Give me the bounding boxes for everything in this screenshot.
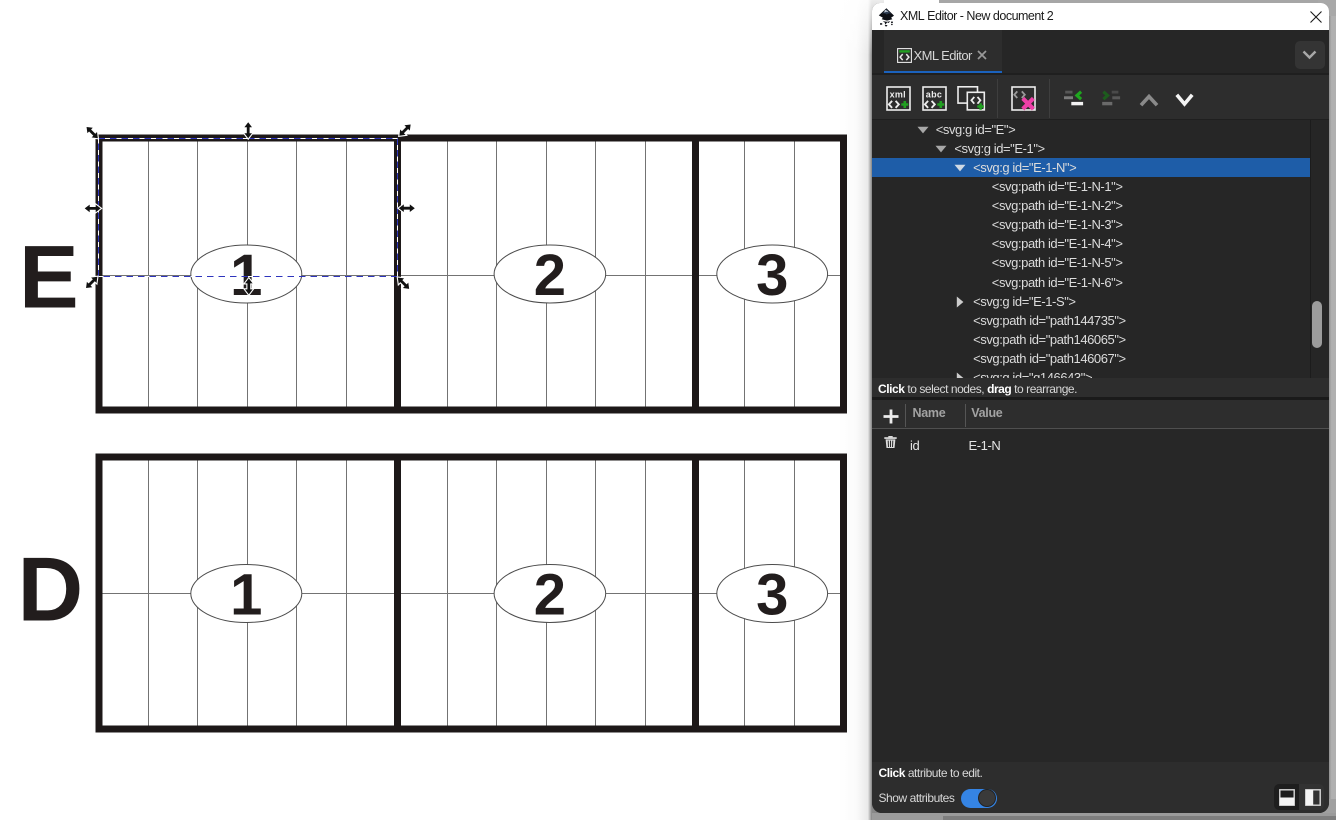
svg-text:2: 2 [534, 243, 566, 308]
svg-text:1: 1 [230, 562, 262, 627]
svg-text:xml: xml [889, 89, 905, 99]
svg-text:1: 1 [230, 243, 262, 308]
svg-text:E: E [19, 227, 79, 327]
svg-text:D: D [18, 540, 84, 641]
svg-text:3: 3 [756, 243, 788, 308]
svg-text:abc: abc [925, 89, 941, 99]
svg-text:3: 3 [756, 562, 788, 627]
svg-text:2: 2 [534, 562, 566, 627]
